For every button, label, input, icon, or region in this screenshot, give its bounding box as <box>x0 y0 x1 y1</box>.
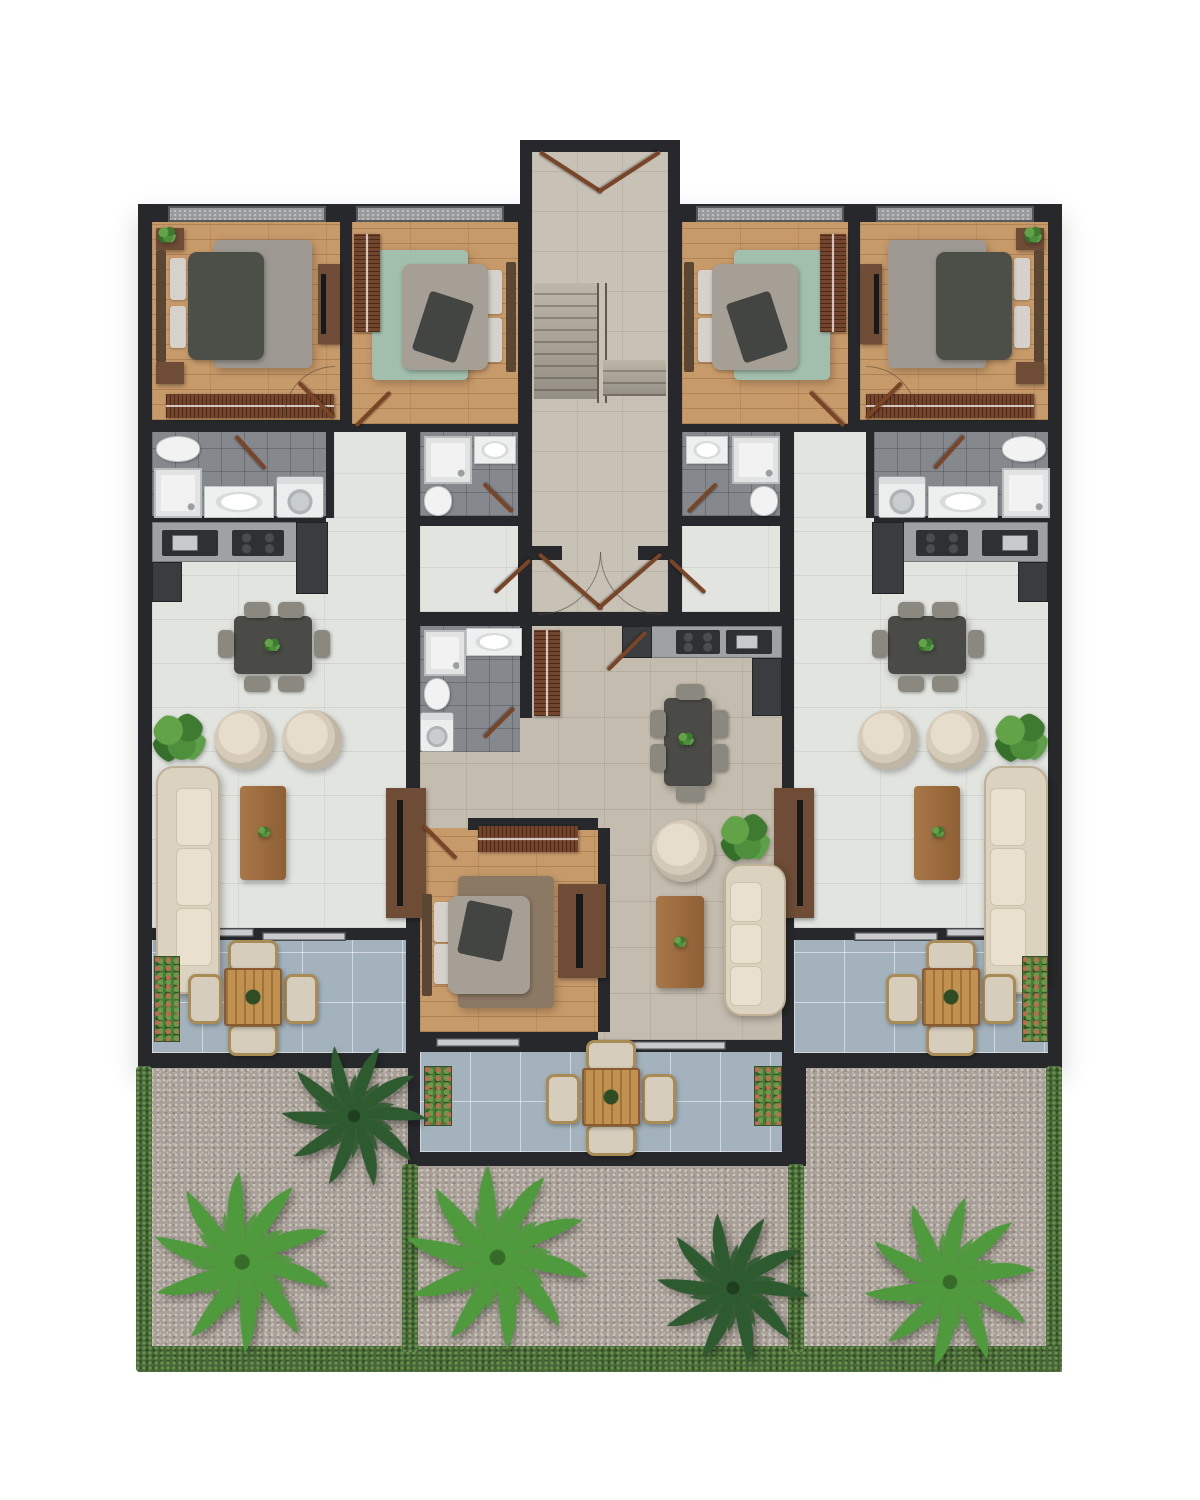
balcony-right-chair-right <box>982 974 1016 1024</box>
toilet-left <box>156 436 200 462</box>
wall-bath-br3-south <box>682 516 780 526</box>
dining-chair-center-1 <box>650 710 666 738</box>
sofa-left-cushion-3 <box>176 908 212 966</box>
plant-bedroom-4 <box>1024 226 1042 244</box>
sofa-right-cushion-3 <box>990 908 1026 966</box>
balcony-right-chair-left <box>886 974 920 1024</box>
dining-chair-left-2 <box>278 602 304 618</box>
window-bedroom-4 <box>876 206 1034 222</box>
toilet-right <box>1002 436 1046 462</box>
dining-chair-center-4 <box>712 744 728 772</box>
planter-balcony-center-right <box>754 1066 782 1126</box>
armchair-right-1 <box>858 710 918 770</box>
kitchen-base-unit-right <box>1018 562 1048 602</box>
pillow-bedroom-2-a <box>486 270 502 314</box>
corridor-right-floor <box>794 432 866 518</box>
washbasin-bedroom-2-bath <box>474 436 516 464</box>
sofa-left-cushion-2 <box>176 848 212 906</box>
balcony-center-table <box>582 1068 640 1126</box>
dining-chair-center-2 <box>650 744 666 772</box>
cooktop-center <box>676 630 720 654</box>
kitchen-return-center <box>752 658 782 716</box>
wardrobe-center-bedroom <box>478 826 578 852</box>
dining-chair-center-6 <box>676 786 704 802</box>
shower-left <box>154 468 202 518</box>
stair-flight-upper <box>534 283 597 399</box>
washbasin-left <box>204 486 274 518</box>
dining-chair-right-3 <box>898 676 924 692</box>
wall-bath-br2-south <box>420 516 518 526</box>
sofa-center-cushion-3 <box>730 966 762 1006</box>
balcony-right-table <box>922 968 980 1026</box>
sofa-right-cushion-2 <box>990 848 1026 906</box>
tv-bedroom-1 <box>321 274 326 334</box>
kitchen-base-unit-left <box>152 562 182 602</box>
dining-chair-right-4 <box>932 676 958 692</box>
coffee-plant-right <box>932 826 944 838</box>
stair-flight-lower <box>603 360 666 396</box>
sofa-left-cushion-1 <box>176 788 212 846</box>
washbasin-center <box>466 628 522 656</box>
sofa-center-cushion-1 <box>730 882 762 922</box>
washing-machine-right <box>878 476 926 518</box>
headboard-center-bedroom <box>422 894 432 996</box>
shower-bedroom-3-bath <box>732 436 780 484</box>
kitchen-tall-unit-left <box>296 522 328 594</box>
armchair-right-2 <box>926 710 986 770</box>
centerpiece-left <box>264 638 280 652</box>
sliding-door-right-a <box>854 932 938 941</box>
planter-balcony-left <box>154 956 180 1042</box>
centerpiece-right <box>918 638 934 652</box>
kitchen-sink-bowl-center <box>736 635 758 649</box>
centerpiece-center <box>678 732 694 746</box>
shower-bedroom-2-bath <box>424 436 472 484</box>
wardrobe-bedroom-2 <box>354 234 380 332</box>
pillow-bedroom-4-b <box>1014 306 1030 348</box>
tv-bedroom-4 <box>874 274 879 334</box>
window-bedroom-1 <box>168 206 326 222</box>
dining-chair-right-5 <box>872 630 888 658</box>
dining-chair-left-6 <box>314 630 330 658</box>
toilet-bedroom-2-bath <box>424 486 452 516</box>
dining-chair-center-3 <box>712 710 728 738</box>
tv-living-left <box>397 800 403 906</box>
armchair-left-2 <box>282 710 342 770</box>
pillow-bedroom-4-a <box>1014 258 1030 300</box>
headboard-bedroom-4 <box>1034 250 1044 362</box>
wardrobe-center-corridor <box>534 630 560 716</box>
window-bedroom-2 <box>356 206 504 222</box>
cooktop-right <box>916 530 968 556</box>
pillow-bedroom-2-b <box>486 318 502 362</box>
cooktop-left <box>232 530 284 556</box>
palm-tree-bright-1 <box>135 1155 350 1370</box>
balcony-left-chair-left <box>188 974 222 1024</box>
kitchen-tall-unit-right <box>872 522 904 594</box>
balcony-left-table <box>224 968 282 1026</box>
dining-chair-left-3 <box>244 676 270 692</box>
sofa-right-cushion-1 <box>990 788 1026 846</box>
washbasin-bedroom-3-bath <box>686 436 728 464</box>
dining-chair-right-1 <box>898 602 924 618</box>
tv-console-living-left <box>386 788 426 918</box>
dining-chair-left-1 <box>244 602 270 618</box>
balcony-center-chair-bottom <box>586 1124 636 1156</box>
toilet-bedroom-3-bath <box>750 486 778 516</box>
balcony-left-chair-right <box>284 974 318 1024</box>
kitchen-sink-bowl-left <box>172 535 198 551</box>
sliding-door-left-b <box>262 932 346 941</box>
plant-living-left <box>152 712 206 764</box>
headboard-bedroom-2 <box>506 262 516 372</box>
dining-chair-right-6 <box>968 630 984 658</box>
coffee-plant-left <box>258 826 270 838</box>
balcony-left-chair-bottom <box>228 1024 278 1056</box>
pillow-bedroom-1-a <box>170 258 186 300</box>
sliding-door-center-bedroom <box>436 1038 520 1047</box>
coffee-plant-center <box>674 936 686 948</box>
dining-chair-left-4 <box>278 676 304 692</box>
shower-right <box>1002 468 1050 518</box>
bed-bedroom-1 <box>188 252 264 360</box>
armchair-center <box>652 820 714 882</box>
plant-living-right <box>994 712 1048 764</box>
washing-machine-center <box>420 712 454 752</box>
window-bedroom-3 <box>696 206 844 222</box>
toilet-center <box>424 678 450 710</box>
headboard-bedroom-1 <box>156 250 166 362</box>
floor-plan <box>0 0 1200 1500</box>
pillow-bedroom-1-b <box>170 306 186 348</box>
armchair-left-1 <box>214 710 274 770</box>
entry-hall-left-floor <box>420 526 518 612</box>
sofa-center-cushion-2 <box>730 924 762 964</box>
headboard-bedroom-3 <box>684 262 694 372</box>
planter-balcony-right <box>1022 956 1048 1042</box>
nightstand-bedroom-1-bottom <box>156 362 184 384</box>
tv-living-right <box>797 800 803 906</box>
corridor-left-floor <box>334 432 406 518</box>
balcony-right-chair-bottom <box>926 1024 976 1056</box>
washbasin-right <box>928 486 998 518</box>
washing-machine-left <box>276 476 324 518</box>
kitchen-sink-bowl-right <box>1002 535 1028 551</box>
dining-chair-left-5 <box>218 630 234 658</box>
entry-hall-right-floor <box>682 526 780 612</box>
garden-hedge-right <box>1046 1066 1062 1372</box>
tv-center-bedroom <box>576 894 583 968</box>
plant-bedroom-1 <box>158 226 176 244</box>
balcony-center-chair-left <box>546 1074 580 1124</box>
bed-bedroom-4 <box>936 252 1012 360</box>
dining-chair-center-5 <box>676 684 704 700</box>
nightstand-bedroom-4-bottom <box>1016 362 1044 384</box>
shower-center <box>424 630 466 676</box>
balcony-center-chair-right <box>642 1074 676 1124</box>
plant-center <box>720 812 770 864</box>
dining-chair-right-2 <box>932 602 958 618</box>
wardrobe-bedroom-3 <box>820 234 846 332</box>
